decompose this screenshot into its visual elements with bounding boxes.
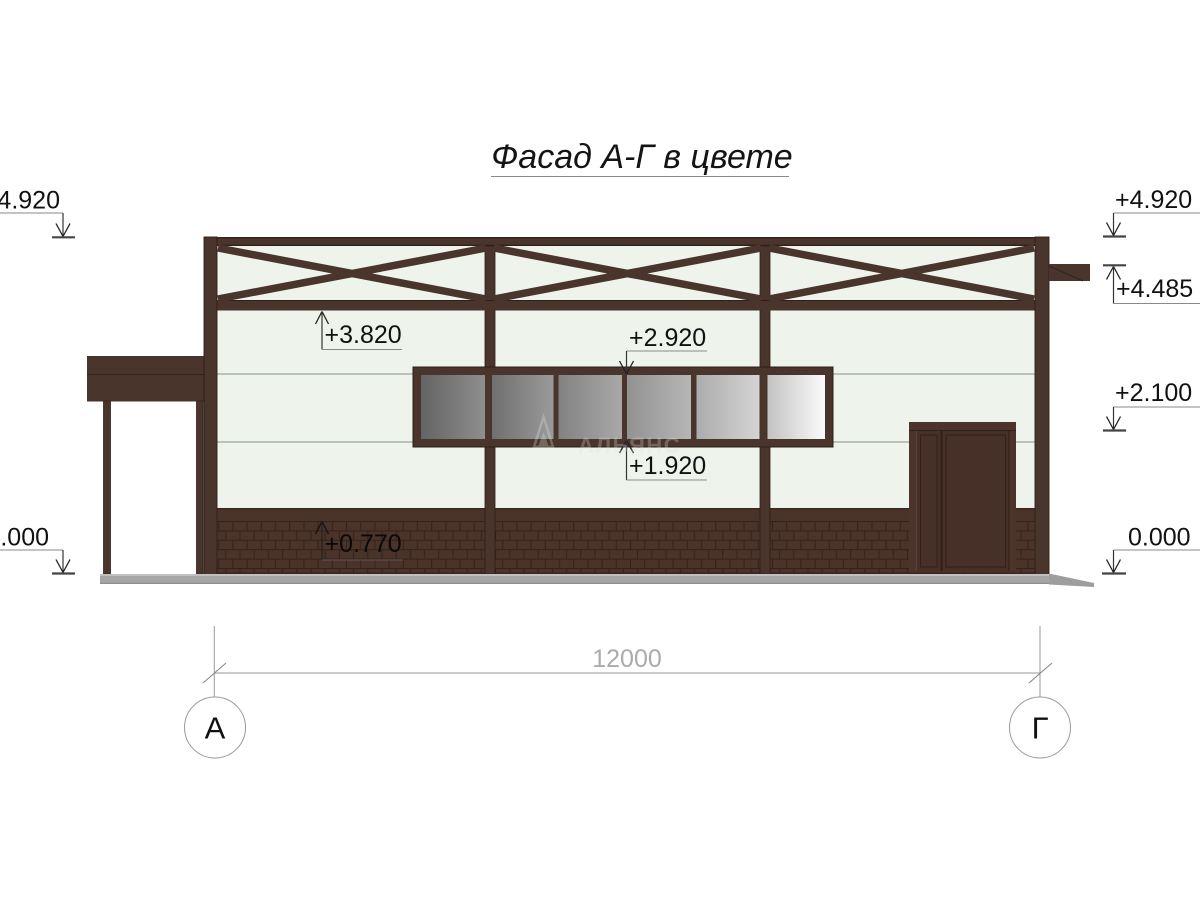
svg-text:А: А	[205, 711, 226, 746]
svg-text:+2.100: +2.100	[1115, 379, 1192, 407]
svg-text:+3.820: +3.820	[325, 321, 402, 349]
svg-text:+4.485: +4.485	[1116, 275, 1193, 303]
svg-text:+0.770: +0.770	[325, 530, 402, 558]
svg-text:0.000: 0.000	[1128, 524, 1191, 552]
svg-text:Фасад А-Г в цвете: Фасад А-Г в цвете	[491, 138, 792, 176]
svg-text:12000: 12000	[592, 645, 662, 673]
svg-text:+4.920: +4.920	[1115, 186, 1192, 214]
svg-text:Г: Г	[1032, 711, 1049, 746]
svg-text:+2.920: +2.920	[629, 324, 706, 352]
svg-text:0.000: 0.000	[0, 524, 49, 552]
svg-text:+4.920: +4.920	[0, 187, 60, 215]
svg-text:АЛЬЯНС: АЛЬЯНС	[578, 433, 681, 458]
